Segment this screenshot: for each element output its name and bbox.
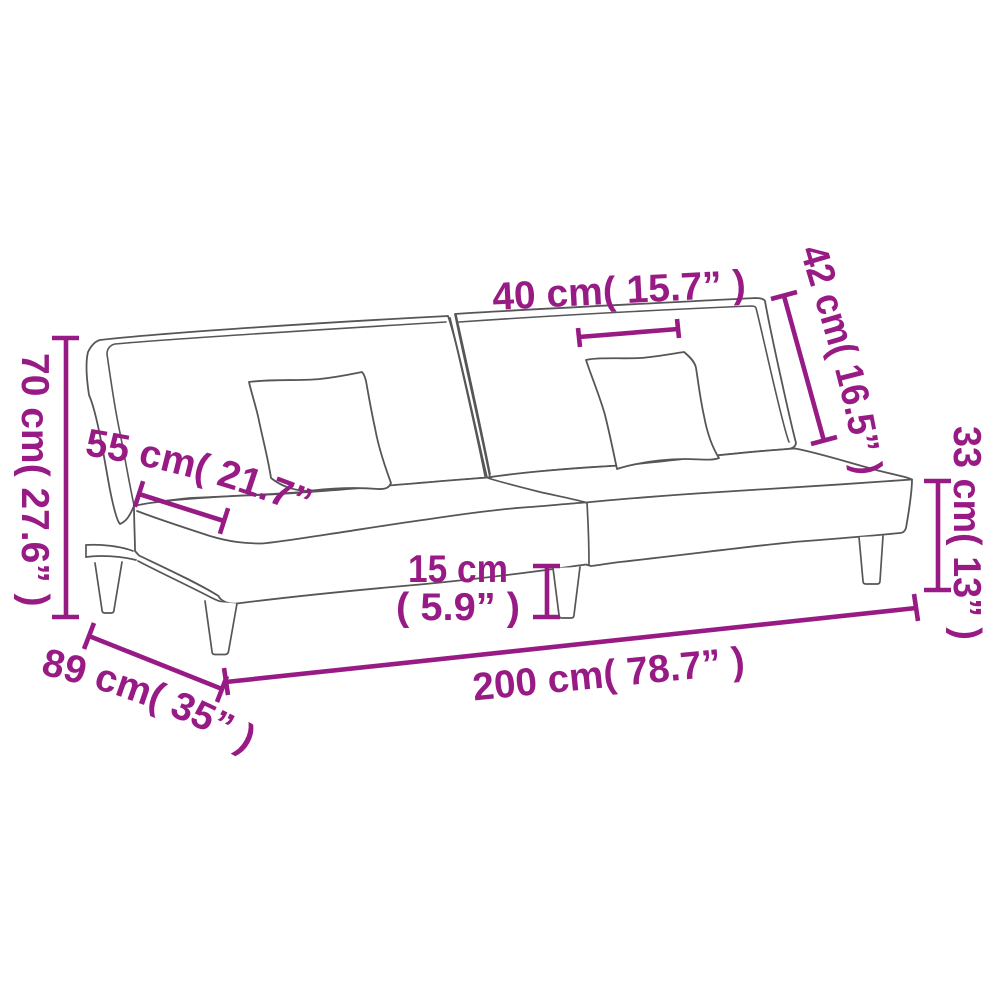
svg-text:42 cm( 16.5” ): 42 cm( 16.5” ) xyxy=(791,240,889,477)
svg-text:70 cm( 27.6” ): 70 cm( 27.6” ) xyxy=(13,353,56,607)
svg-text:33 cm( 13” ): 33 cm( 13” ) xyxy=(945,426,988,640)
svg-text:15 cm: 15 cm xyxy=(408,548,508,591)
svg-text:( 5.9” ): ( 5.9” ) xyxy=(396,586,520,629)
